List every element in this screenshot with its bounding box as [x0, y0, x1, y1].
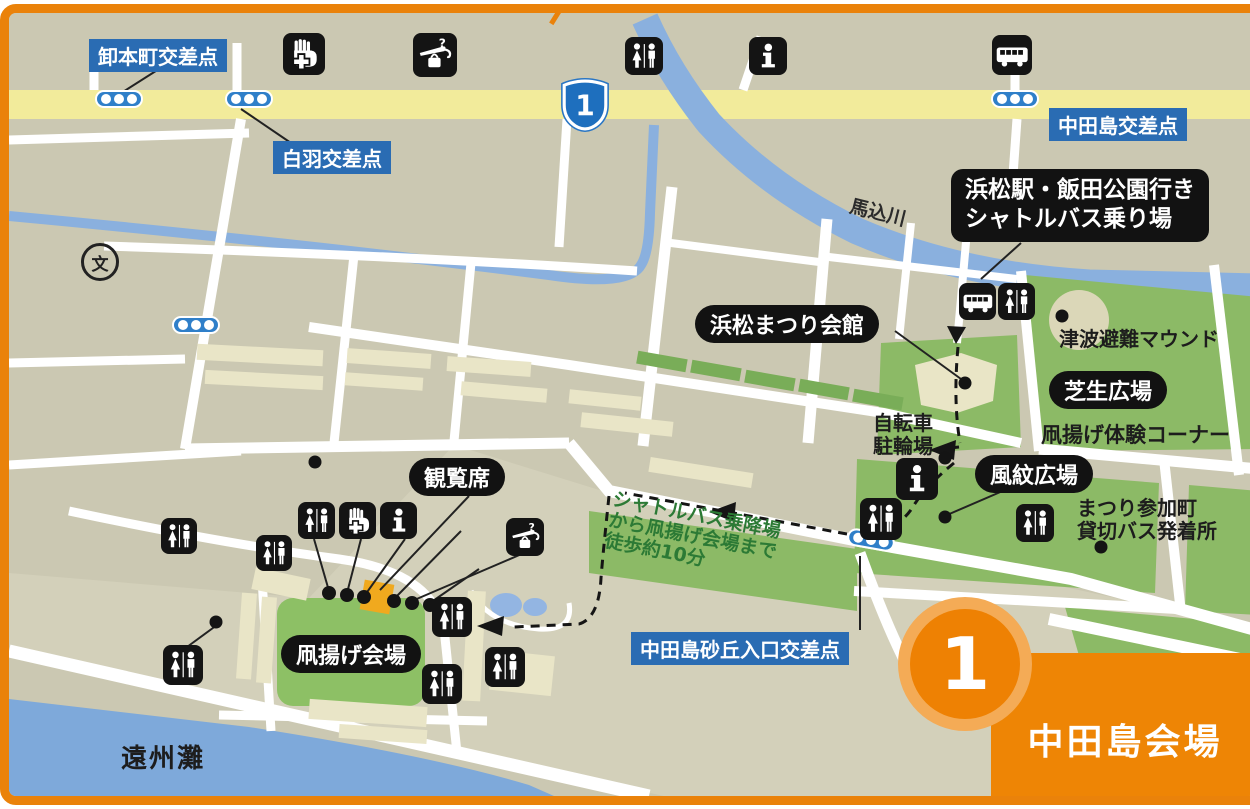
signal-west: [172, 316, 220, 334]
kite-experience-label: 凧揚げ体験コーナー: [1041, 423, 1230, 447]
participating-towns-label: まつり参加町貸切バス発着所: [1077, 497, 1217, 543]
school-symbol: 文: [81, 243, 119, 281]
svg-text:?: ?: [528, 521, 534, 534]
toilet-icon: [161, 518, 197, 554]
toilet-icon: [256, 535, 292, 571]
toilet-icon: [625, 37, 663, 75]
first-aid-icon: [283, 33, 325, 75]
information-icon: [896, 458, 938, 500]
signal-shiraha: [225, 90, 273, 108]
sea-label: 遠州灘: [121, 745, 205, 775]
shuttle-boarding-label: 浜松駅・飯田公園行き シャトルバス乗り場: [951, 169, 1209, 242]
intersection-label-shiraha: 白羽交差点: [273, 141, 391, 174]
spectator-seats-label: 観覧席: [409, 458, 505, 496]
venue-name: 中田島会場: [1027, 685, 1222, 765]
intersection-label-nakatajima: 中田島交差点: [1049, 108, 1187, 141]
shuttle-bus-icon: [992, 35, 1032, 75]
tsunami-mound-label: 津波避難マウンド: [1059, 328, 1219, 351]
intersection-label-dune-entrance: 中田島砂丘入口交差点: [631, 632, 849, 665]
toilet-icon: [485, 647, 525, 687]
toilet-icon: [422, 664, 462, 704]
toilet-icon: [298, 502, 335, 539]
toilet-icon: [860, 498, 902, 540]
svg-text:1: 1: [575, 89, 595, 122]
venue-number-badge: 1: [898, 597, 1032, 731]
information-icon: [380, 502, 417, 539]
signal-nakatajima: [991, 90, 1039, 108]
bicycle-parking-label: 自転車駐輪場: [873, 412, 933, 458]
toilet-icon: [998, 283, 1035, 320]
route-1-shield: 1: [559, 77, 611, 133]
lost-and-found-icon: ?: [413, 33, 457, 77]
toilet-icon: [432, 597, 472, 637]
intersection-label-oroshihoncho: 卸本町交差点: [89, 39, 227, 72]
kite-venue-label: 凧揚げ会場: [281, 635, 421, 673]
toilet-icon: [1016, 504, 1054, 542]
venue-number: 1: [940, 622, 990, 706]
lawn-plaza-label: 芝生広場: [1049, 371, 1167, 409]
matsuri-hall-label: 浜松まつり会館: [695, 305, 879, 343]
lost-and-found-icon: ?: [506, 518, 544, 556]
svg-text:?: ?: [439, 36, 446, 50]
information-icon: [749, 37, 787, 75]
venue-map: 卸本町交差点 救護所 ? 忘れ物取扱所 トイレ インフォメーション シャトルバス…: [0, 4, 1250, 805]
toilet-icon: [163, 645, 203, 685]
first-aid-icon: [339, 502, 376, 539]
wind-ripple-plaza-label: 風紋広場: [975, 455, 1093, 493]
signal-oroshihoncho: [95, 90, 143, 108]
shuttle-bus-icon: [959, 283, 996, 320]
